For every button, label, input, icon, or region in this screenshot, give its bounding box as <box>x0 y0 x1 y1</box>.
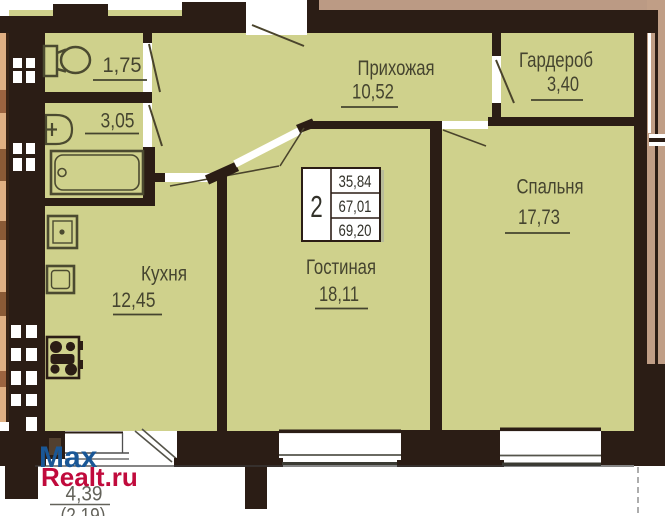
svg-text:35,84: 35,84 <box>339 172 372 191</box>
svg-text:(2,19): (2,19) <box>61 505 106 516</box>
svg-text:18,11: 18,11 <box>319 283 359 306</box>
svg-text:3,05: 3,05 <box>101 110 135 133</box>
svg-text:17,73: 17,73 <box>518 206 560 229</box>
svg-text:3,40: 3,40 <box>547 73 579 96</box>
svg-text:Кухня: Кухня <box>141 263 187 286</box>
svg-text:Realt.ru: Realt.ru <box>41 462 138 492</box>
svg-text:2: 2 <box>310 189 323 224</box>
svg-text:1,75: 1,75 <box>103 54 142 77</box>
svg-text:Гостиная: Гостиная <box>306 256 376 279</box>
svg-text:10,52: 10,52 <box>352 81 394 104</box>
svg-text:Спальня: Спальня <box>517 176 584 199</box>
svg-text:Прихожая: Прихожая <box>358 57 435 80</box>
svg-text:67,01: 67,01 <box>339 197 372 216</box>
svg-text:12,45: 12,45 <box>112 289 156 312</box>
svg-text:Гардероб: Гардероб <box>519 49 593 72</box>
svg-text:69,20: 69,20 <box>339 221 372 240</box>
